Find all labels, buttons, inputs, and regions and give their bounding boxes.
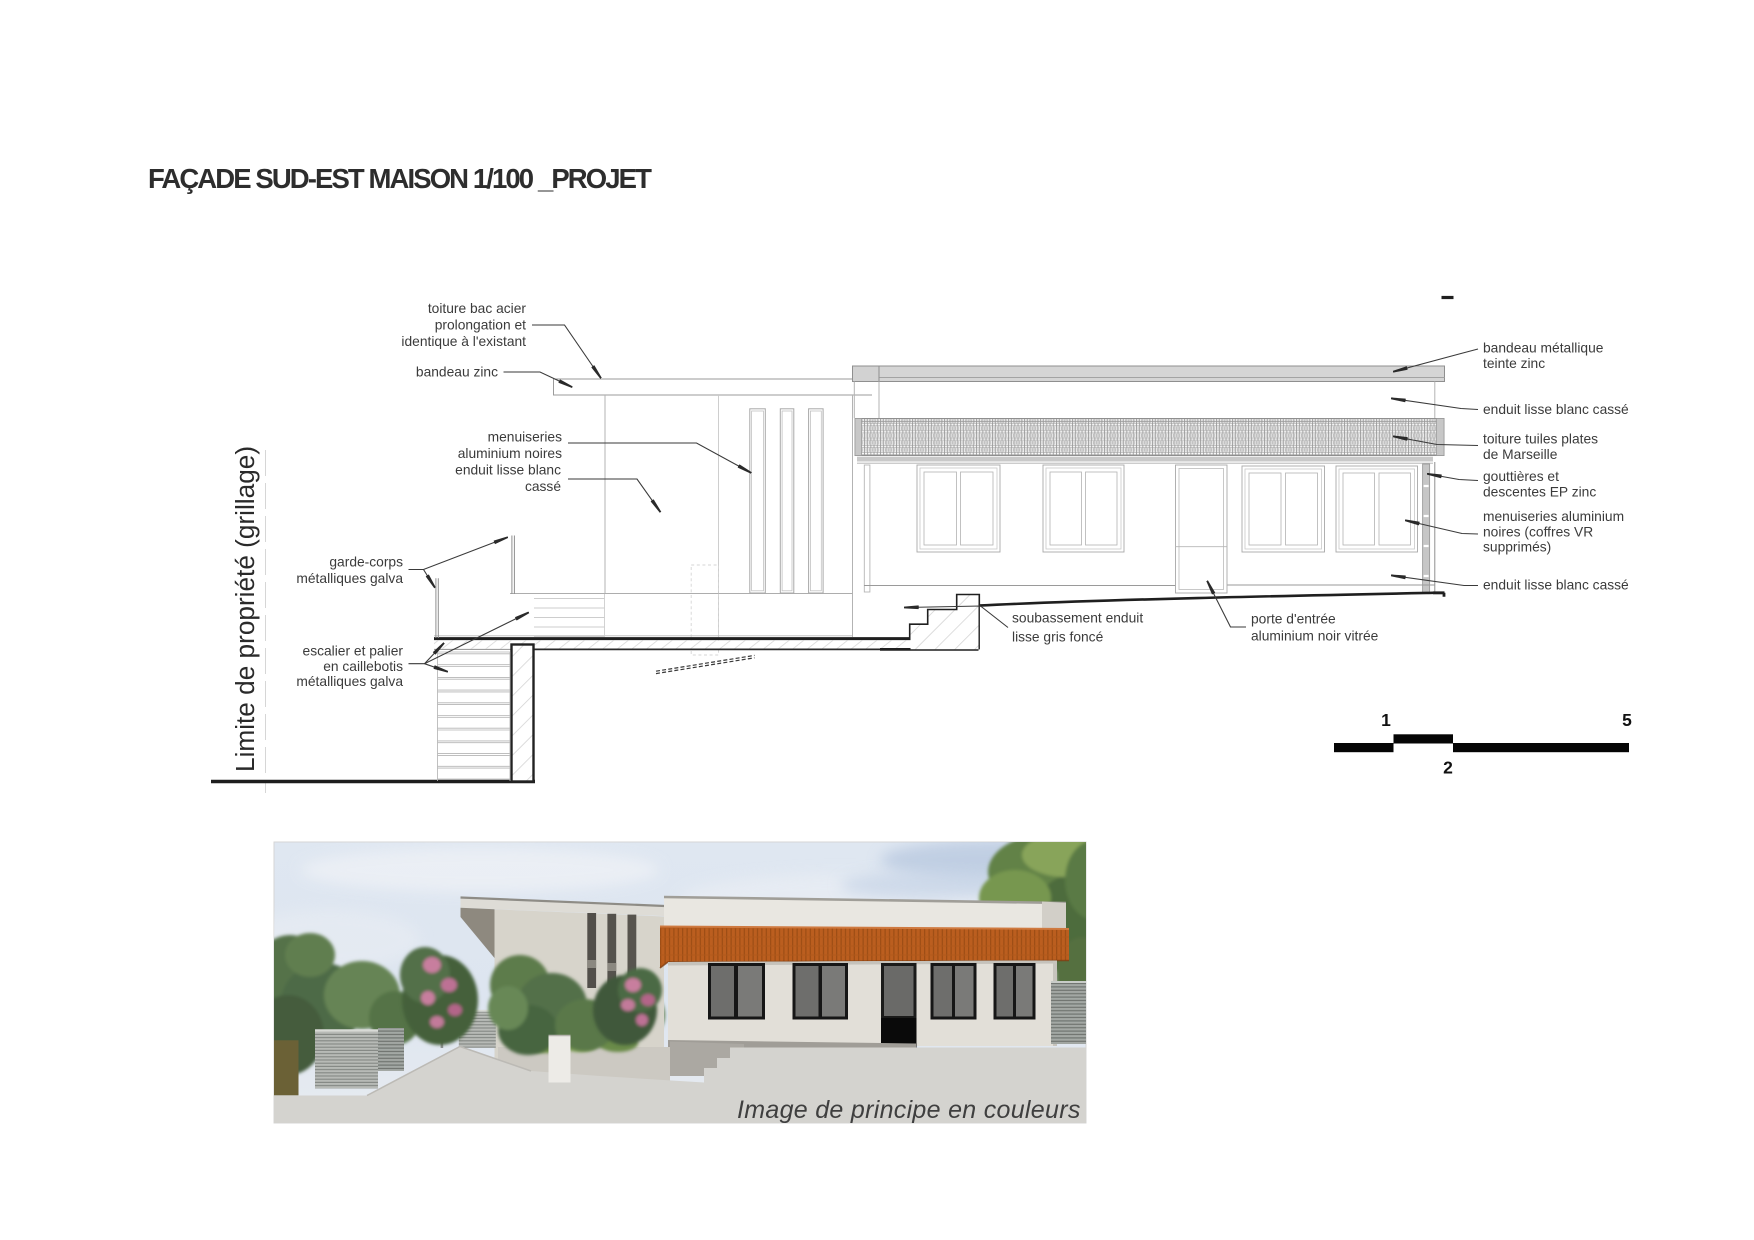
svg-text:lisse gris foncé: lisse gris foncé xyxy=(1012,630,1104,645)
svg-text:aluminium noires: aluminium noires xyxy=(458,446,562,461)
svg-text:métalliques galva: métalliques galva xyxy=(296,674,403,689)
svg-text:menuiseries aluminium: menuiseries aluminium xyxy=(1483,509,1624,524)
svg-text:gouttières et: gouttières et xyxy=(1483,469,1559,484)
svg-text:porte d'entrée: porte d'entrée xyxy=(1251,612,1336,627)
svg-text:enduit lisse blanc: enduit lisse blanc xyxy=(455,463,561,478)
svg-text:cassé: cassé xyxy=(525,479,561,494)
svg-text:1: 1 xyxy=(1381,710,1391,730)
svg-text:escalier et palier: escalier et palier xyxy=(303,644,404,659)
svg-text:supprimés): supprimés) xyxy=(1483,540,1551,555)
svg-text:Image de principe en couleurs: Image de principe en couleurs xyxy=(737,1096,1081,1124)
svg-text:toiture tuiles plates: toiture tuiles plates xyxy=(1483,432,1598,447)
svg-text:soubassement enduit: soubassement enduit xyxy=(1012,611,1143,626)
svg-text:de Marseille: de Marseille xyxy=(1483,447,1558,462)
svg-text:identique à l'existant: identique à l'existant xyxy=(401,334,526,349)
svg-text:bandeau zinc: bandeau zinc xyxy=(416,365,498,380)
svg-text:5: 5 xyxy=(1622,710,1632,730)
svg-text:garde-corps: garde-corps xyxy=(329,555,403,570)
svg-text:aluminium noir vitrée: aluminium noir vitrée xyxy=(1251,629,1379,644)
svg-text:métalliques galva: métalliques galva xyxy=(296,571,403,586)
svg-text:Limite de propriété (grillage): Limite de propriété (grillage) xyxy=(230,446,260,772)
svg-text:noires (coffres VR: noires (coffres VR xyxy=(1483,524,1593,539)
svg-text:bandeau métallique: bandeau métallique xyxy=(1483,341,1604,356)
svg-text:FAÇADE SUD-EST MAISON 1/100 _P: FAÇADE SUD-EST MAISON 1/100 _PROJET xyxy=(148,163,652,194)
svg-text:toiture bac acier: toiture bac acier xyxy=(428,301,527,316)
svg-text:2: 2 xyxy=(1443,758,1453,778)
svg-text:en caillebotis: en caillebotis xyxy=(323,659,403,674)
svg-text:prolongation et: prolongation et xyxy=(435,318,526,333)
svg-text:descentes EP zinc: descentes EP zinc xyxy=(1483,484,1596,499)
svg-text:enduit lisse blanc cassé: enduit lisse blanc cassé xyxy=(1483,578,1629,593)
svg-text:enduit lisse blanc cassé: enduit lisse blanc cassé xyxy=(1483,402,1629,417)
svg-text:menuiseries: menuiseries xyxy=(488,430,562,445)
svg-text:teinte zinc: teinte zinc xyxy=(1483,356,1545,371)
